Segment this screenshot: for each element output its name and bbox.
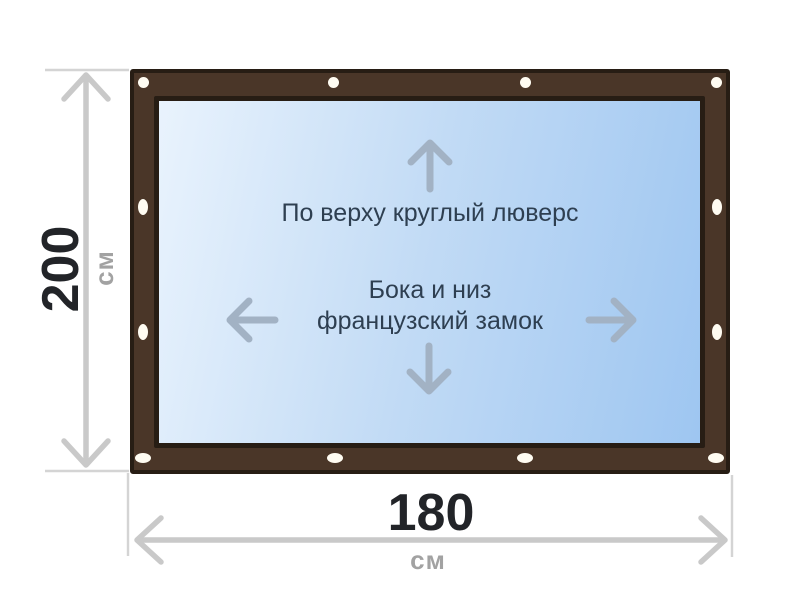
grommet-icon	[708, 453, 724, 463]
grommet-icon	[712, 199, 722, 215]
annotation-middle-line1: Бока и низ	[230, 275, 630, 306]
tarpaulin-dimension-diagram: По верху круглый люверс Бока и низ франц…	[0, 0, 800, 600]
grommet-icon	[712, 324, 722, 340]
annotation-middle-line2: французский замок	[230, 306, 630, 337]
grommet-icon	[517, 453, 533, 463]
annotation-top: По верху круглый люверс	[230, 199, 630, 227]
grommet-icon	[328, 77, 339, 88]
grommet-icon	[135, 453, 151, 463]
width-unit-label: см	[410, 547, 446, 573]
grommet-icon	[327, 453, 343, 463]
grommet-icon	[138, 199, 148, 215]
grommet-icon	[711, 77, 722, 88]
grommet-icon	[138, 77, 149, 88]
height-value-label: 200	[35, 226, 87, 313]
grommet-icon	[520, 77, 531, 88]
tarp-frame	[130, 69, 730, 474]
annotation-middle: Бока и низ французский замок	[230, 275, 630, 337]
grommet-icon	[138, 324, 148, 340]
tarp-panel	[154, 96, 705, 448]
height-unit-label: см	[91, 250, 117, 286]
width-value-label: 180	[388, 487, 475, 539]
